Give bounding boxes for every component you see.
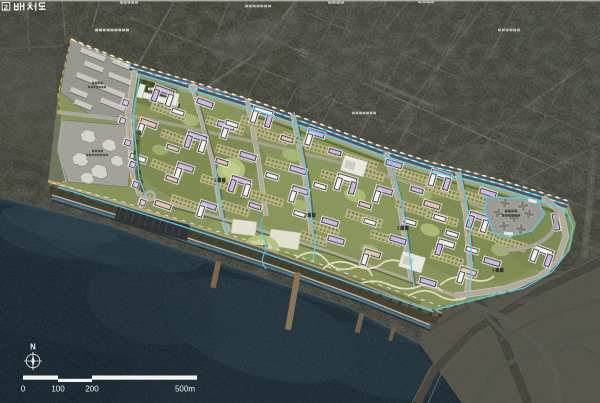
svg-text:500m: 500m [175, 385, 195, 394]
svg-text:2: 2 [4, 2, 8, 11]
svg-text:0: 0 [21, 385, 26, 394]
svg-text:N: N [30, 343, 36, 352]
svg-text:200: 200 [85, 385, 99, 394]
svg-text:100: 100 [51, 385, 65, 394]
